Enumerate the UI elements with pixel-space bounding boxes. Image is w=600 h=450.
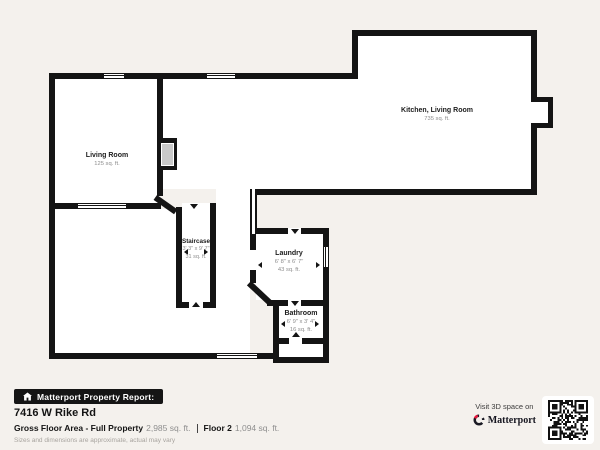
report-badge: Matterport Property Report: [14, 389, 163, 404]
room-floor [55, 209, 216, 353]
passage [252, 195, 255, 228]
property-report-page: Living Room 125 sq. ft. Kitchen, Living … [0, 0, 600, 450]
fireplace-hearth [161, 143, 174, 166]
staircase-wall [210, 203, 216, 308]
wall [352, 30, 358, 79]
house-icon [23, 392, 32, 401]
room-label-living-room: Living Room 125 sq. ft. [86, 152, 128, 168]
floor-label: Floor 2 [204, 423, 232, 433]
window [207, 73, 235, 79]
door-marker [192, 302, 200, 307]
report-badge-label: Matterport Property Report: [37, 392, 154, 402]
dimension-arrow [258, 262, 262, 268]
disclaimer-text: Sizes and dimensions are approximate, ac… [14, 437, 175, 444]
property-address: 7416 W Rike Rd [14, 407, 96, 419]
room-label-kitchen-living-room: Kitchen, Living Room 735 sq. ft. [401, 107, 473, 123]
room-dims: 3' 3" x 9' 7" [182, 246, 209, 253]
room-area: 16 sq. ft. [290, 327, 312, 334]
wall [273, 357, 329, 363]
wall [531, 30, 537, 102]
wall [250, 189, 537, 195]
room-name: Staircase [182, 238, 210, 245]
gross-area-value: 2,985 sq. ft. [146, 423, 190, 433]
wall [49, 73, 358, 79]
room-dims: 6' 9" x 3' 4" [287, 319, 316, 326]
window [323, 247, 329, 267]
door-marker [291, 229, 299, 234]
bathroom-floor [279, 344, 323, 357]
floor-area-value: 1,094 sq. ft. [235, 423, 279, 433]
room-area: 31 sq. ft. [185, 254, 206, 261]
room-name: Bathroom [284, 310, 317, 318]
room-label-laundry: Laundry 6' 8" x 6' 7" 43 sq. ft. [275, 250, 304, 274]
qr-code [542, 396, 594, 444]
window [78, 203, 126, 209]
room-area: 125 sq. ft. [94, 161, 119, 168]
bathroom-wall [273, 300, 279, 363]
wall [49, 73, 55, 359]
room-label-bathroom: Bathroom 6' 9" x 3' 4" 16 sq. ft. [284, 310, 317, 334]
floor-area-stats: Gross Floor Area - Full Property 2,985 s… [14, 423, 279, 433]
room-floor [163, 79, 358, 189]
door-marker [190, 204, 198, 209]
room-name: Kitchen, Living Room [401, 107, 473, 115]
room-name: Laundry [275, 250, 303, 258]
wall [157, 170, 163, 196]
dimension-arrow [316, 262, 320, 268]
room-area: 735 sq. ft. [424, 116, 449, 123]
visit-3d-cta[interactable]: Visit 3D space on Matterport [473, 402, 536, 426]
door-opening [289, 338, 302, 344]
matterport-logo-icon [473, 414, 485, 426]
matterport-wordmark: Matterport [488, 415, 536, 426]
room-label-staircase: Staircase 3' 3" x 9' 7" 31 sq. ft. [182, 238, 210, 260]
matterport-brand: Matterport [473, 414, 536, 426]
door-opening [250, 250, 256, 270]
room-area: 43 sq. ft. [278, 267, 300, 274]
wall [352, 30, 537, 36]
room-floor [55, 79, 157, 203]
wall [157, 73, 163, 138]
hallway-floor [216, 189, 250, 353]
visit-3d-label: Visit 3D space on [475, 402, 533, 411]
gross-area-label: Gross Floor Area - Full Property [14, 423, 143, 433]
divider [197, 424, 198, 433]
room-dims: 6' 8" x 6' 7" [275, 259, 304, 266]
door-marker [291, 301, 299, 306]
window [104, 73, 124, 79]
qr-code-pattern [548, 400, 588, 440]
window [217, 353, 257, 359]
bay-wall [531, 123, 553, 128]
wall [531, 123, 537, 195]
door-opening [252, 228, 255, 234]
room-name: Living Room [86, 152, 128, 160]
